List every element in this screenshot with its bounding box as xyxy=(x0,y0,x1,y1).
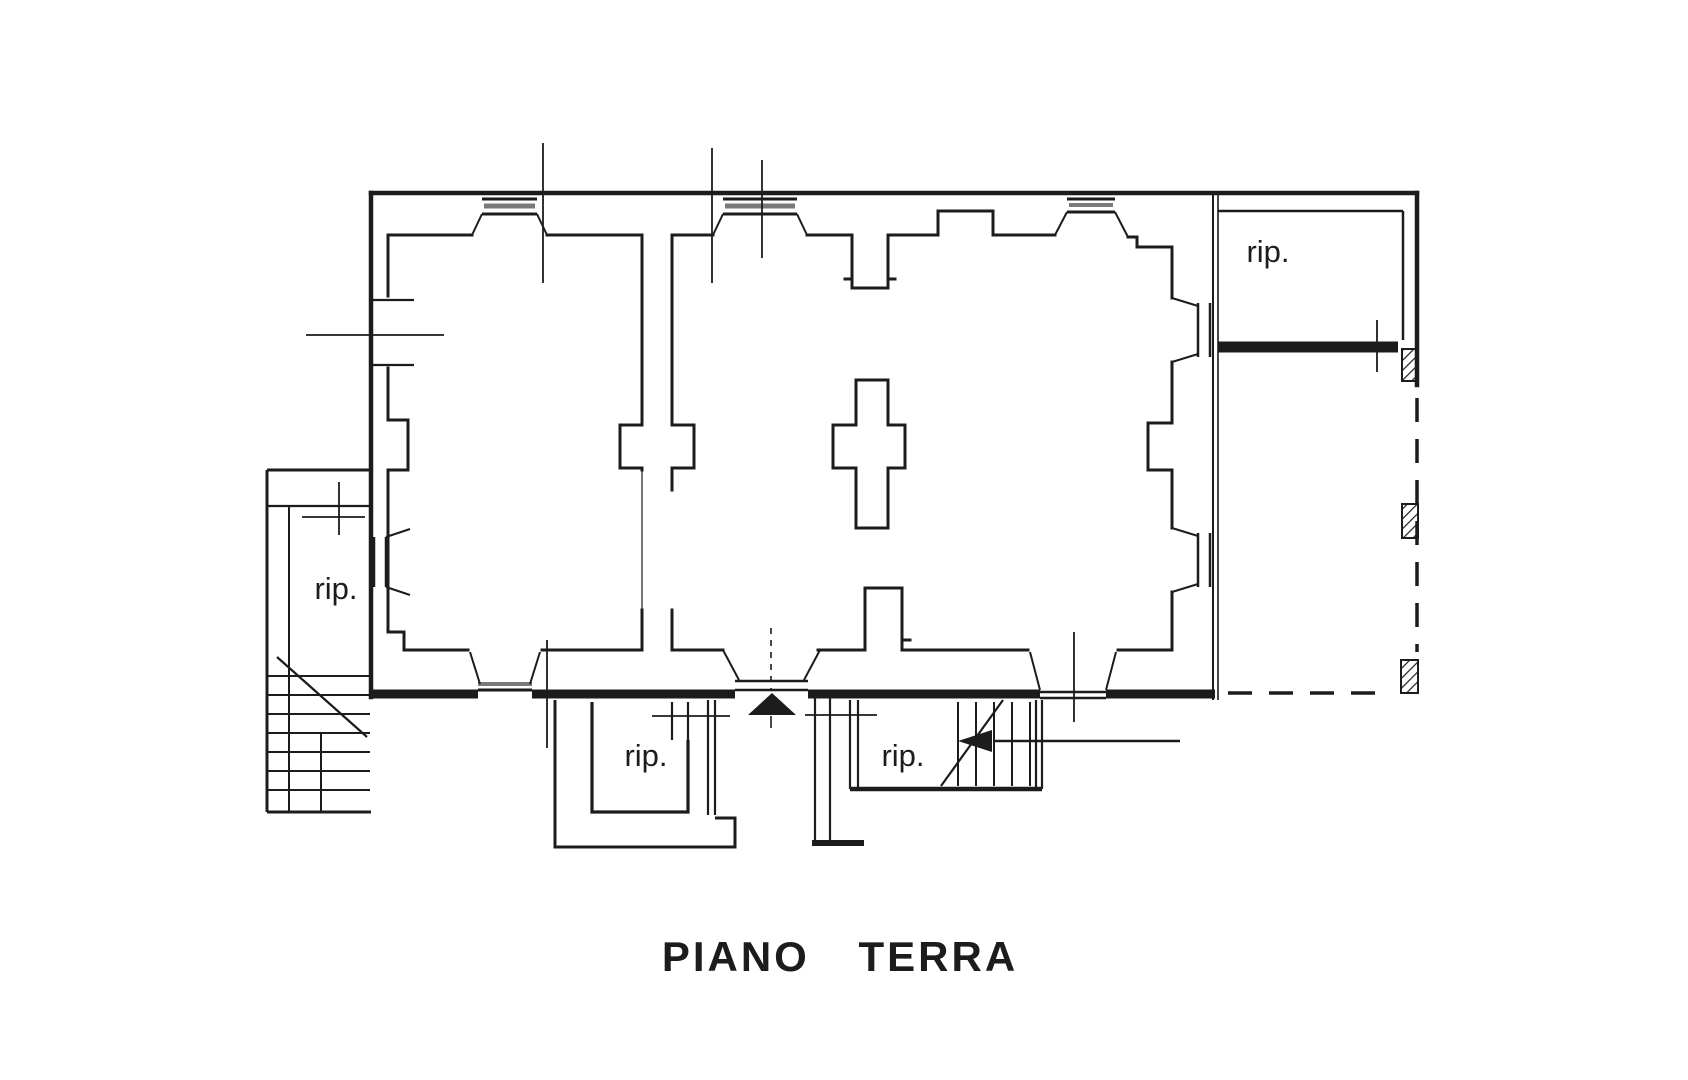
floor-plan: rip. rip. rip. rip. PIANO TERRA xyxy=(0,0,1688,1080)
bottom-left-annex xyxy=(555,700,735,847)
room-label-storage-bottom-right: rip. xyxy=(881,738,924,773)
window-icon xyxy=(1055,199,1128,237)
window-icon xyxy=(1030,652,1116,698)
window-icon xyxy=(1172,528,1210,592)
window-icon xyxy=(470,652,540,690)
window-icon xyxy=(713,199,807,235)
plan-title: PIANO TERRA xyxy=(662,933,1018,980)
central-pier xyxy=(833,380,905,528)
room-label-storage-top-right: rip. xyxy=(1246,234,1289,269)
column-icon xyxy=(1402,504,1418,538)
room-label-storage-bottom-left: rip. xyxy=(624,738,667,773)
main-entrance xyxy=(723,628,820,728)
column-icon xyxy=(1402,349,1418,381)
windows xyxy=(371,199,1210,698)
window-icon xyxy=(1172,298,1210,362)
window-icon xyxy=(371,300,414,365)
porch-dashed-boundary xyxy=(1228,398,1417,693)
window-icon xyxy=(472,199,547,235)
left-annex xyxy=(267,470,371,812)
entrance-arrow-icon xyxy=(748,693,796,715)
room-label-storage-left-annex: rip. xyxy=(314,571,357,606)
storage-room-top-right xyxy=(1218,193,1403,700)
window-icon xyxy=(374,529,410,595)
interior-walls xyxy=(388,211,1172,650)
floor-plan-page: rip. rip. rip. rip. PIANO TERRA xyxy=(0,0,1688,1080)
stair-break-line xyxy=(277,657,367,737)
column-icon xyxy=(1401,660,1418,693)
bottom-right-annex xyxy=(812,697,1180,843)
